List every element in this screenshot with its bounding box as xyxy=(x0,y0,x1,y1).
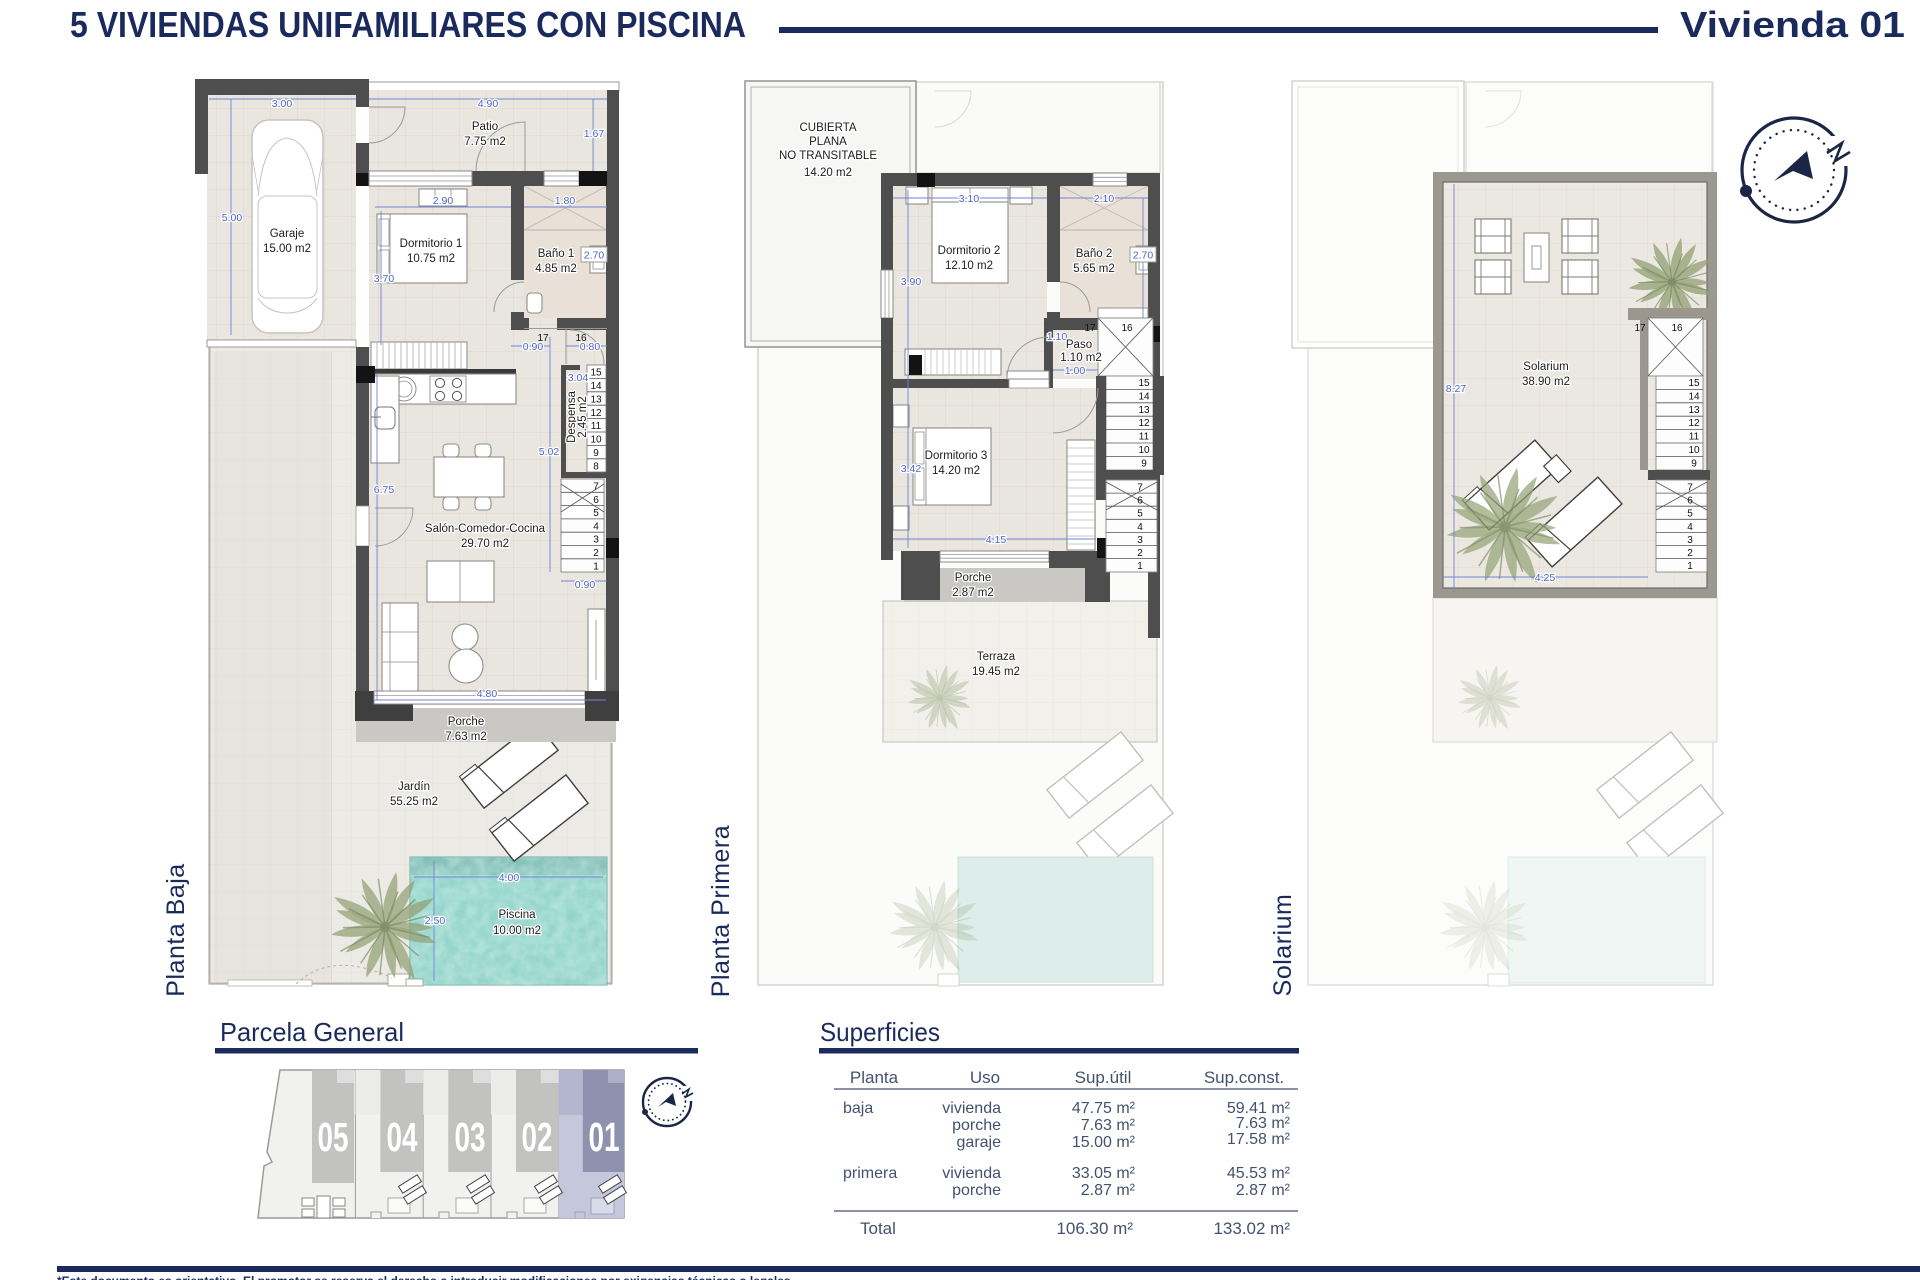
svg-text:Solarium: Solarium xyxy=(1523,361,1568,373)
svg-text:17: 17 xyxy=(1084,323,1096,334)
svg-text:2.87 m2: 2.87 m2 xyxy=(952,587,994,599)
svg-text:6: 6 xyxy=(593,495,599,506)
svg-text:CUBIERTA: CUBIERTA xyxy=(799,122,856,134)
svg-text:17.58 m²: 17.58 m² xyxy=(1227,1131,1291,1148)
svg-text:Garaje: Garaje xyxy=(270,228,305,240)
svg-text:Porche: Porche xyxy=(448,716,484,728)
svg-text:Paso: Paso xyxy=(1066,339,1092,351)
svg-text:5 VIVIENDAS UNIFAMILIARES CON: 5 VIVIENDAS UNIFAMILIARES CON PISCINA xyxy=(70,4,746,45)
svg-text:4: 4 xyxy=(593,521,599,532)
svg-text:1.80: 1.80 xyxy=(555,195,576,207)
svg-text:7.75 m2: 7.75 m2 xyxy=(464,136,506,148)
svg-text:Planta Baja: Planta Baja xyxy=(162,863,190,996)
svg-text:13: 13 xyxy=(1138,405,1150,416)
svg-text:2: 2 xyxy=(1687,548,1693,559)
svg-text:12.10 m2: 12.10 m2 xyxy=(945,260,993,272)
svg-text:Planta Primera: Planta Primera xyxy=(707,825,735,997)
svg-text:15: 15 xyxy=(590,368,602,379)
svg-text:1.10: 1.10 xyxy=(1047,331,1068,343)
svg-text:2.50: 2.50 xyxy=(425,915,446,927)
svg-text:porche: porche xyxy=(952,1117,1001,1134)
svg-text:5.65 m2: 5.65 m2 xyxy=(1073,263,1115,275)
svg-text:13: 13 xyxy=(1688,405,1700,416)
svg-text:4: 4 xyxy=(1687,522,1693,533)
svg-text:4.80: 4.80 xyxy=(477,688,498,700)
svg-text:Piscina: Piscina xyxy=(498,909,536,921)
svg-text:1: 1 xyxy=(593,561,599,572)
svg-text:1: 1 xyxy=(1137,561,1143,572)
svg-text:11: 11 xyxy=(1689,432,1700,443)
svg-text:3.04: 3.04 xyxy=(568,372,589,384)
svg-text:13: 13 xyxy=(590,394,602,405)
svg-text:3.00: 3.00 xyxy=(272,98,293,110)
svg-text:45.53 m²: 45.53 m² xyxy=(1227,1165,1291,1182)
svg-text:vivienda: vivienda xyxy=(942,1165,1001,1182)
svg-text:Sup.útil: Sup.útil xyxy=(1075,1068,1132,1087)
svg-text:7: 7 xyxy=(593,482,599,493)
svg-text:0.90: 0.90 xyxy=(523,341,544,353)
svg-text:5: 5 xyxy=(1687,509,1693,520)
svg-text:10.00 m2: 10.00 m2 xyxy=(493,925,541,937)
svg-text:7.63 m²: 7.63 m² xyxy=(1081,1117,1136,1134)
svg-text:Dormitorio 3: Dormitorio 3 xyxy=(925,450,988,462)
svg-text:11: 11 xyxy=(1139,432,1150,443)
svg-text:Parcela General: Parcela General xyxy=(220,1017,404,1047)
svg-text:Baño 1: Baño 1 xyxy=(538,248,574,260)
svg-text:33.05 m²: 33.05 m² xyxy=(1072,1165,1136,1182)
svg-text:14: 14 xyxy=(1138,391,1150,402)
svg-text:2.70: 2.70 xyxy=(584,250,605,262)
svg-text:15.00 m²: 15.00 m² xyxy=(1072,1134,1136,1151)
svg-text:11: 11 xyxy=(591,421,602,432)
svg-text:Dormitorio 1: Dormitorio 1 xyxy=(400,238,463,250)
svg-text:PLANA: PLANA xyxy=(809,136,847,148)
svg-text:3: 3 xyxy=(1687,535,1693,546)
svg-text:47.75 m²: 47.75 m² xyxy=(1072,1100,1136,1117)
svg-text:7: 7 xyxy=(1137,483,1143,494)
svg-text:2: 2 xyxy=(593,548,599,559)
svg-text:29.70 m2: 29.70 m2 xyxy=(461,538,509,550)
svg-text:8: 8 xyxy=(593,461,599,472)
svg-text:4: 4 xyxy=(1137,522,1143,533)
svg-text:133.02 m²: 133.02 m² xyxy=(1213,1219,1290,1238)
svg-text:10: 10 xyxy=(1138,445,1150,456)
svg-text:15: 15 xyxy=(1688,378,1700,389)
svg-text:4.90: 4.90 xyxy=(478,98,499,110)
svg-text:38.90 m2: 38.90 m2 xyxy=(1522,376,1570,388)
svg-text:3.42: 3.42 xyxy=(901,463,922,475)
svg-text:02: 02 xyxy=(522,1114,553,1160)
svg-text:5: 5 xyxy=(1137,509,1143,520)
svg-text:03: 03 xyxy=(455,1114,486,1160)
svg-text:Baño 2: Baño 2 xyxy=(1076,248,1112,260)
svg-text:garaje: garaje xyxy=(957,1134,1002,1151)
svg-text:10.75 m2: 10.75 m2 xyxy=(407,253,455,265)
svg-text:9: 9 xyxy=(1141,458,1147,469)
svg-text:1.10 m2: 1.10 m2 xyxy=(1060,352,1102,364)
svg-text:1: 1 xyxy=(1687,561,1693,572)
svg-text:6: 6 xyxy=(1137,496,1143,507)
svg-text:7.63 m2: 7.63 m2 xyxy=(445,731,487,743)
svg-text:6: 6 xyxy=(1687,496,1693,507)
svg-text:10: 10 xyxy=(1688,445,1700,456)
svg-text:14: 14 xyxy=(1688,391,1700,402)
svg-text:porche: porche xyxy=(952,1182,1001,1199)
svg-text:7: 7 xyxy=(1687,483,1693,494)
svg-text:vivienda: vivienda xyxy=(942,1100,1001,1117)
svg-text:1.67: 1.67 xyxy=(584,128,605,140)
svg-text:3.70: 3.70 xyxy=(374,273,395,285)
svg-text:2.45 m2: 2.45 m2 xyxy=(577,396,589,438)
svg-text:3.90: 3.90 xyxy=(901,276,922,288)
svg-text:7.63 m²: 7.63 m² xyxy=(1236,1115,1291,1132)
svg-text:Salón-Comedor-Cocina: Salón-Comedor-Cocina xyxy=(425,523,546,535)
svg-text:05: 05 xyxy=(318,1114,349,1160)
svg-text:Uso: Uso xyxy=(970,1068,1000,1087)
svg-text:5.02: 5.02 xyxy=(539,446,560,458)
svg-text:8.27: 8.27 xyxy=(1446,383,1467,395)
svg-text:0.80: 0.80 xyxy=(580,341,601,353)
svg-text:1.00: 1.00 xyxy=(1065,365,1086,377)
svg-text:17: 17 xyxy=(1634,323,1646,334)
svg-text:14: 14 xyxy=(590,381,602,392)
svg-text:NO TRANSITABLE: NO TRANSITABLE xyxy=(779,150,877,162)
svg-text:Dormitorio 2: Dormitorio 2 xyxy=(938,245,1001,257)
svg-text:Patio: Patio xyxy=(472,121,498,133)
svg-text:2.90: 2.90 xyxy=(433,195,454,207)
svg-text:Porche: Porche xyxy=(955,572,991,584)
svg-text:12: 12 xyxy=(590,408,602,419)
svg-text:12: 12 xyxy=(1688,418,1700,429)
svg-text:15.00 m2: 15.00 m2 xyxy=(263,243,311,255)
svg-text:16: 16 xyxy=(1121,323,1133,334)
svg-text:106.30 m²: 106.30 m² xyxy=(1056,1219,1133,1238)
svg-text:4.85 m2: 4.85 m2 xyxy=(535,263,577,275)
svg-text:baja: baja xyxy=(843,1100,873,1117)
svg-text:15: 15 xyxy=(1138,378,1150,389)
svg-text:01: 01 xyxy=(589,1114,620,1160)
svg-text:12: 12 xyxy=(1138,418,1150,429)
svg-text:5.00: 5.00 xyxy=(222,212,243,224)
svg-text:Solarium: Solarium xyxy=(1269,894,1297,997)
svg-text:Planta: Planta xyxy=(850,1068,899,1087)
svg-text:4.15: 4.15 xyxy=(986,534,1007,546)
svg-text:2.87 m²: 2.87 m² xyxy=(1236,1182,1291,1199)
svg-text:16: 16 xyxy=(1671,323,1683,334)
svg-text:3: 3 xyxy=(593,535,599,546)
svg-text:3: 3 xyxy=(1137,535,1143,546)
svg-text:Total: Total xyxy=(860,1219,896,1238)
svg-text:55.25 m2: 55.25 m2 xyxy=(390,796,438,808)
svg-text:04: 04 xyxy=(387,1114,418,1160)
svg-text:Terraza: Terraza xyxy=(977,651,1016,663)
svg-text:19.45 m2: 19.45 m2 xyxy=(972,666,1020,678)
svg-text:0.90: 0.90 xyxy=(575,579,596,591)
svg-text:9: 9 xyxy=(593,448,599,459)
svg-text:Vivienda 01: Vivienda 01 xyxy=(1680,4,1905,45)
svg-text:2.70: 2.70 xyxy=(1133,250,1154,262)
svg-text:4.00: 4.00 xyxy=(499,872,520,884)
svg-text:2.10: 2.10 xyxy=(1094,193,1115,205)
svg-text:10: 10 xyxy=(590,435,602,446)
svg-text:2: 2 xyxy=(1137,548,1143,559)
svg-text:*Este documento es orientativo: *Este documento es orientativo. El promo… xyxy=(57,1274,794,1280)
svg-text:9: 9 xyxy=(1691,458,1697,469)
svg-text:primera: primera xyxy=(843,1165,897,1182)
svg-text:14.20 m2: 14.20 m2 xyxy=(932,465,980,477)
svg-text:3.10: 3.10 xyxy=(959,193,980,205)
svg-text:6.75: 6.75 xyxy=(374,484,395,496)
svg-text:Sup.const.: Sup.const. xyxy=(1204,1068,1284,1087)
svg-text:4.25: 4.25 xyxy=(1535,572,1556,584)
svg-text:14.20 m2: 14.20 m2 xyxy=(804,167,852,179)
svg-text:Superficies: Superficies xyxy=(820,1017,940,1047)
svg-text:2.87 m²: 2.87 m² xyxy=(1081,1182,1136,1199)
svg-text:Jardín: Jardín xyxy=(398,781,430,793)
svg-text:5: 5 xyxy=(593,508,599,519)
